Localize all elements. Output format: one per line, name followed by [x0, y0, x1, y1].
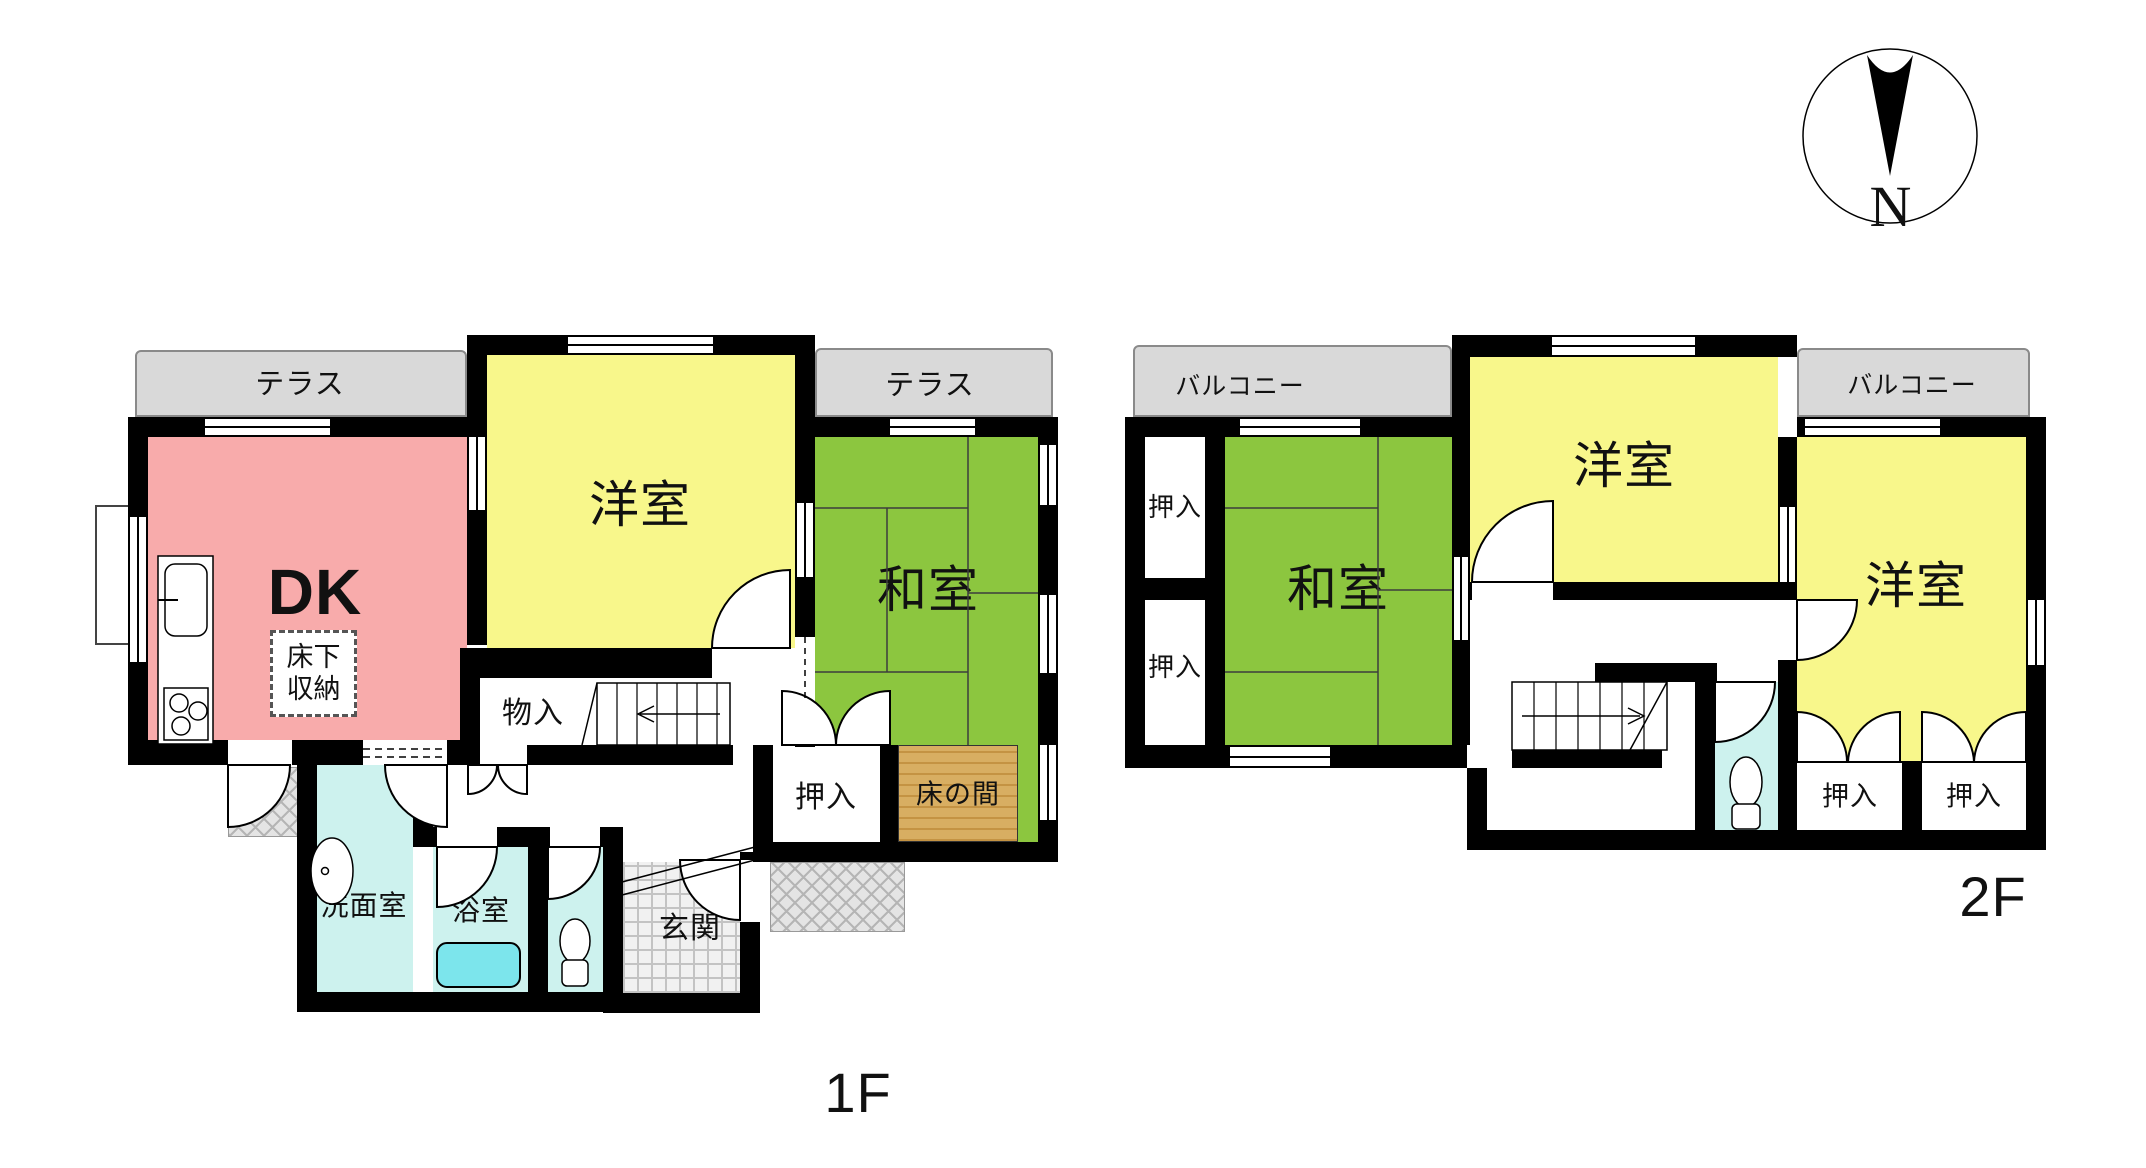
door-arc: [1715, 682, 1775, 742]
door-arc: [1472, 501, 1553, 582]
stove-icon: [164, 688, 208, 740]
door-arc: [782, 691, 836, 745]
door-arc: [548, 847, 600, 899]
compass-north-label: N: [1870, 178, 1913, 236]
door-arc: [437, 847, 497, 907]
door-arc: [1974, 712, 2026, 762]
door-arc: [468, 765, 497, 794]
linework-overlay: [0, 0, 2146, 1168]
bathtub-icon: [437, 943, 520, 987]
toilet-icon-1f: [560, 919, 590, 986]
door-arc: [1797, 600, 1857, 660]
door-arc: [1797, 712, 1847, 762]
stairs-1f: [582, 683, 730, 745]
door-arc: [385, 765, 447, 827]
door-arc: [680, 860, 740, 920]
kitchen-sink: [158, 556, 213, 744]
tatami-grid-2f: [1225, 437, 1452, 745]
door-arc: [836, 691, 890, 745]
toilet-icon-2f: [1730, 757, 1762, 829]
tatami-grid-1f: [815, 437, 1038, 745]
door-arc: [228, 765, 290, 827]
stairs-2f: [1512, 682, 1667, 750]
sliding-door-dash: [363, 749, 447, 757]
door-arc: [712, 570, 790, 648]
door-arc: [1922, 712, 1974, 762]
door-arc: [1848, 712, 1900, 762]
door-arc: [498, 765, 527, 794]
floorplan-canvas: テラス テラス DK 洋室 和室 物入 押入 床の間 洗面室 浴室 玄関 床下収…: [0, 0, 2146, 1168]
washbasin-icon: [311, 838, 353, 904]
